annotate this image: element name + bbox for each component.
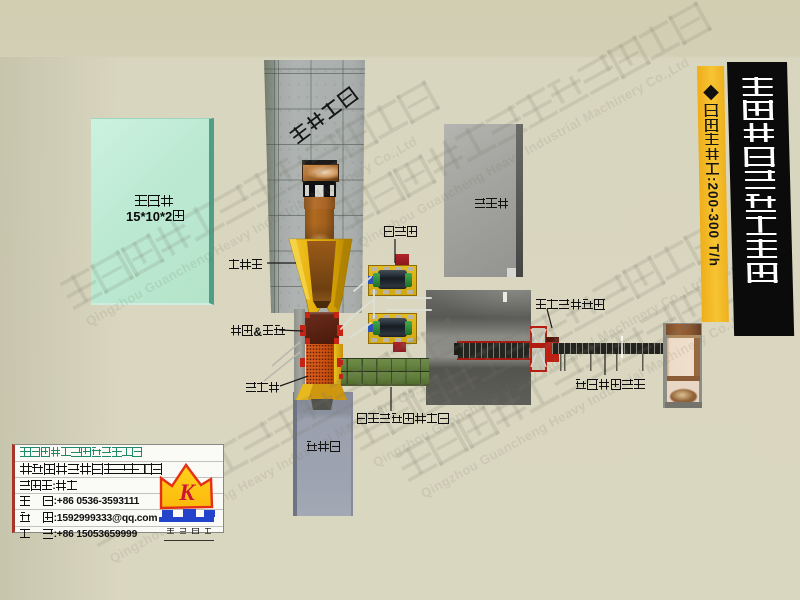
svg-text:K: K xyxy=(178,480,196,505)
